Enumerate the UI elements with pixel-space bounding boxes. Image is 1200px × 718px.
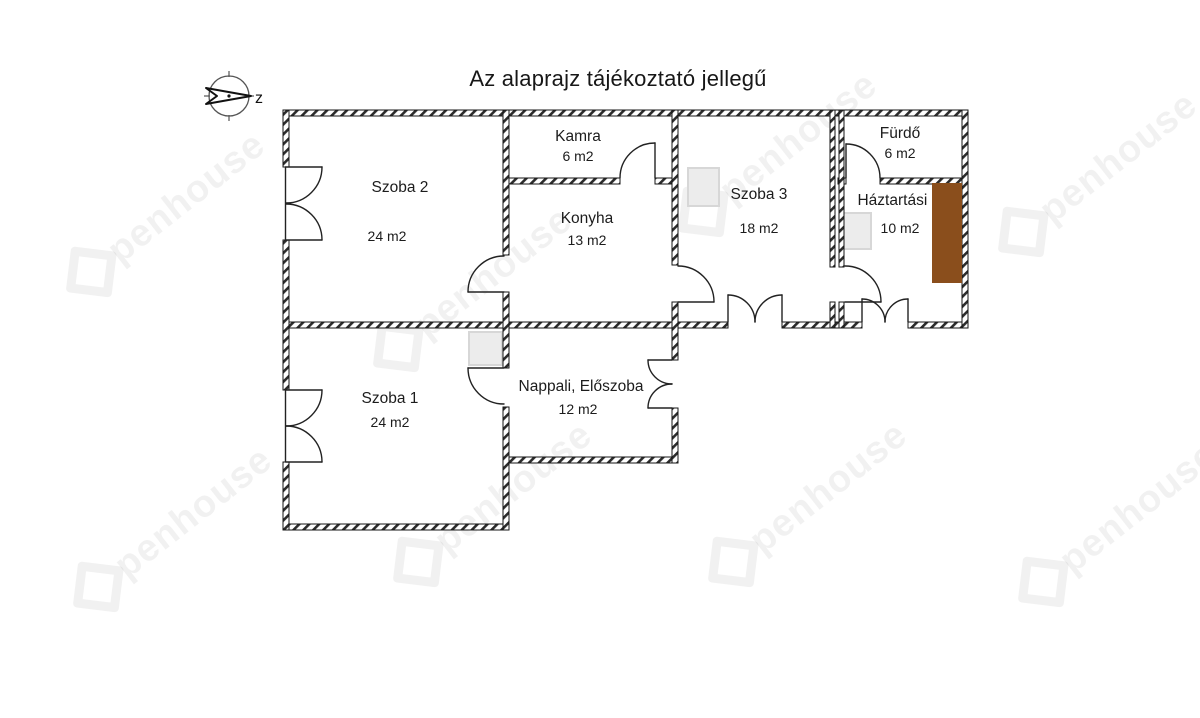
room-szoba1-label: Szoba 1 — [320, 390, 460, 408]
wall — [283, 462, 289, 530]
window-szoba1 — [286, 390, 323, 462]
room-szoba2-area: 24 m2 — [317, 228, 457, 244]
wall — [839, 302, 844, 328]
door-szoba2 — [468, 256, 504, 292]
room-haztartasi-area: 10 m2 — [840, 220, 960, 236]
wall — [908, 322, 968, 328]
wall — [283, 524, 509, 530]
room-szoba3-area: 18 m2 — [689, 220, 829, 236]
wall — [503, 178, 620, 184]
door-haztartasi — [845, 266, 881, 302]
room-kamra-label: Kamra — [508, 128, 648, 146]
wall — [503, 407, 509, 530]
wall — [672, 408, 678, 463]
room-kamra-area: 6 m2 — [508, 148, 648, 164]
wall — [283, 240, 289, 390]
wall — [672, 302, 678, 360]
room-konyha-area: 13 m2 — [517, 232, 657, 248]
room-nappali-label: Nappali, Előszoba — [496, 378, 666, 396]
room-furdo-area: 6 m2 — [830, 145, 970, 161]
french-door-szoba3 — [728, 295, 782, 322]
plan-title: Az alaprajz tájékoztató jellegű — [408, 66, 828, 92]
room-furdo-label: Fürdő — [830, 125, 970, 143]
compass-center-dot — [227, 94, 230, 97]
room-szoba2-label: Szoba 2 — [330, 179, 470, 197]
room-konyha-label: Konyha — [517, 210, 657, 228]
compass-rose: z — [204, 71, 263, 121]
plan-linework: z — [0, 0, 1200, 718]
wall — [283, 110, 968, 116]
floorplan: penhouse penhouse penhouse penhouse penh… — [0, 0, 1200, 718]
wall — [503, 457, 678, 463]
wall — [672, 110, 678, 265]
wall — [830, 302, 835, 328]
compass-label: z — [255, 90, 263, 107]
wall — [782, 322, 862, 328]
room-nappali-area: 12 m2 — [508, 401, 648, 417]
wall — [283, 110, 289, 167]
room-szoba3-label: Szoba 3 — [689, 186, 829, 204]
door-szoba3 — [678, 266, 714, 302]
room-szoba1-area: 24 m2 — [320, 414, 460, 430]
wall — [503, 292, 509, 368]
walls — [283, 110, 968, 530]
